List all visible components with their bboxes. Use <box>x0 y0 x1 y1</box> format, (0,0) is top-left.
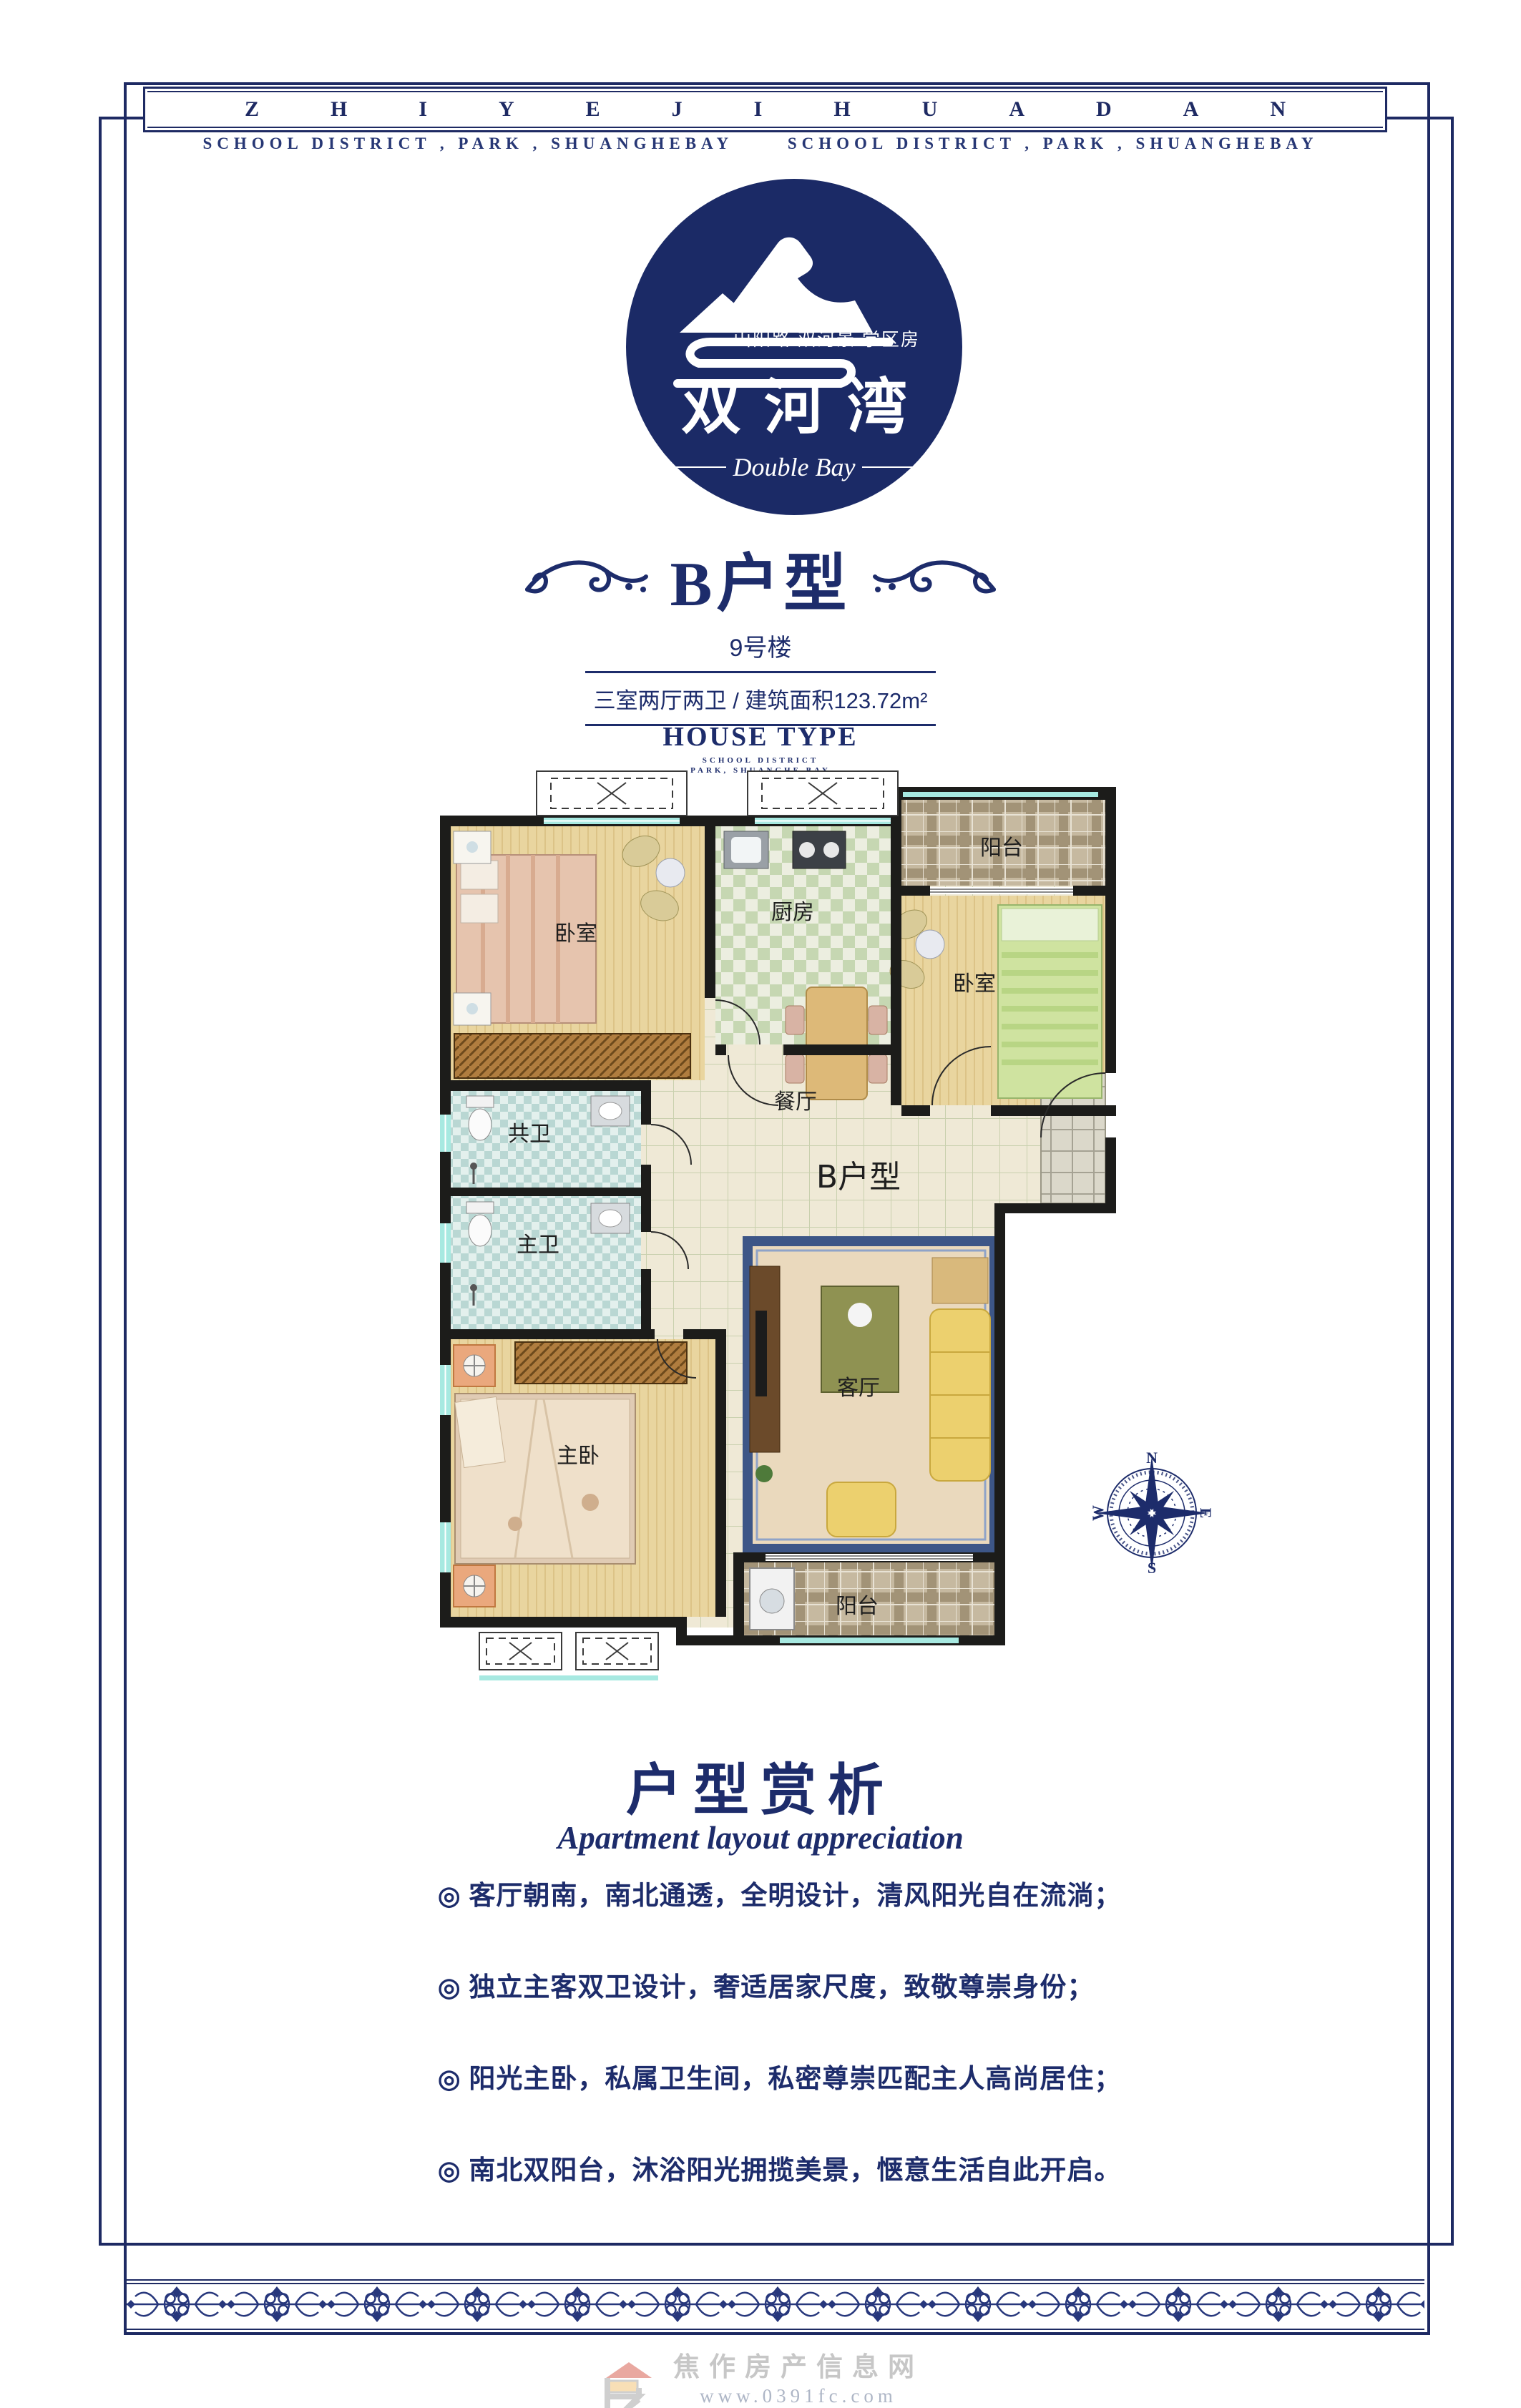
compass-rose-icon: N E S W <box>1087 1449 1216 1581</box>
analysis-title: 户型赏析 <box>0 1746 1521 1826</box>
house-type-sub1: SCHOOL DISTRICT <box>0 755 1521 765</box>
room-label-bath-shared: 共卫 <box>508 1122 551 1147</box>
floor-plan: 卧室 厨房 阳台 卧室 餐厅 共卫 主卫 主卧 客厅 阳台 B户型 <box>429 765 1116 1692</box>
room-label-bedroom-tl: 卧室 <box>554 921 597 946</box>
top-letter-band-inner: ZHIYEJIHUADAN <box>147 91 1383 128</box>
room-label-kitchen: 厨房 <box>771 900 814 925</box>
room-label-bedroom-r: 卧室 <box>953 971 996 997</box>
logo-brand-name: 双河湾 <box>626 359 962 446</box>
room-label-dining: 餐厅 <box>774 1090 817 1115</box>
compass-n: N <box>1146 1449 1158 1467</box>
room-label-bath-master: 主卫 <box>517 1233 559 1258</box>
room-label-master: 主卧 <box>557 1444 600 1469</box>
poster-page: ZHIYEJIHUADAN SCHOOL DISTRICT , PARK , S… <box>0 0 1521 2408</box>
room-label-living: 客厅 <box>837 1376 880 1401</box>
footer-site-name: 焦作房产信息网 <box>673 2345 924 2384</box>
top-letter-band: ZHIYEJIHUADAN <box>143 87 1387 132</box>
bullet-text: 独立主客双卫设计，奢适居家尺度，致敬尊崇身份； <box>469 1972 1094 2003</box>
logo-tagline: 山阳路 双河景 学区房 <box>733 326 948 351</box>
analysis-bullet-3: ◎ 阳光主卧，私属卫生间，私密尊崇匹配主人高尚居住； <box>438 2063 1225 2095</box>
unit-title: B户型 <box>670 533 851 624</box>
flourish-left-icon <box>522 552 650 605</box>
bullet-marker-icon: ◎ <box>438 1972 460 2003</box>
compass-e: E <box>1197 1508 1215 1519</box>
unit-title-row: B户型 <box>0 533 1521 624</box>
house-type-heading: HOUSE TYPE <box>0 721 1521 753</box>
bullet-marker-icon: ◎ <box>438 2155 460 2186</box>
room-label-balcony-bottom: 阳台 <box>836 1594 879 1619</box>
footer-site-logo-icon <box>597 2356 660 2408</box>
room-label-balcony-top: 阳台 <box>980 836 1023 861</box>
unit-spec: 三室两厅两卫 / 建筑面积123.72m² <box>585 671 936 726</box>
bullet-text: 阳光主卧，私属卫生间，私密尊崇匹配主人高尚居住； <box>469 2063 1121 2095</box>
ornament-band <box>127 2279 1424 2334</box>
footer-site-url: www.0391fc.com <box>673 2384 924 2408</box>
bullet-text: 客厅朝南，南北通透，全明设计，清风阳光自在流淌； <box>469 1880 1121 1912</box>
plan-unit-label: B户型 <box>816 1159 901 1195</box>
analysis-bullet-1: ◎ 客厅朝南，南北通透，全明设计，清风阳光自在流淌； <box>438 1880 1225 1912</box>
brand-logo: 山阳路 双河景 学区房 双河湾 Double Bay <box>626 179 962 515</box>
logo-brand-name-en: Double Bay <box>733 452 856 482</box>
bullet-marker-icon: ◎ <box>438 1880 460 1912</box>
logo-line-right <box>862 466 937 468</box>
band-subtitle: SCHOOL DISTRICT , PARK , SHUANGHEBAY SCH… <box>0 134 1521 153</box>
compass-s: S <box>1148 1559 1156 1577</box>
analysis-bullet-2: ◎ 独立主客双卫设计，奢适居家尺度，致敬尊崇身份； <box>438 1972 1225 2003</box>
logo-line-left <box>651 466 726 468</box>
analysis-subtitle: Apartment layout appreciation <box>0 1819 1521 1856</box>
bullet-marker-icon: ◎ <box>438 2063 460 2095</box>
building-number: 9号楼 <box>0 628 1521 663</box>
band-letters: ZHIYEJIHUADAN <box>173 97 1357 122</box>
flourish-right-icon <box>871 552 999 605</box>
bullet-text: 南北双阳台，沐浴阳光拥揽美景，惬意生活自此开启。 <box>469 2155 1121 2186</box>
logo-english-row: Double Bay <box>651 452 937 482</box>
footer-watermark: 焦作房产信息网 www.0391fc.com 焦作房地产门户 <box>0 2345 1521 2408</box>
analysis-bullet-4: ◎ 南北双阳台，沐浴阳光拥揽美景，惬意生活自此开启。 <box>438 2155 1225 2186</box>
compass-w: W <box>1089 1505 1107 1521</box>
